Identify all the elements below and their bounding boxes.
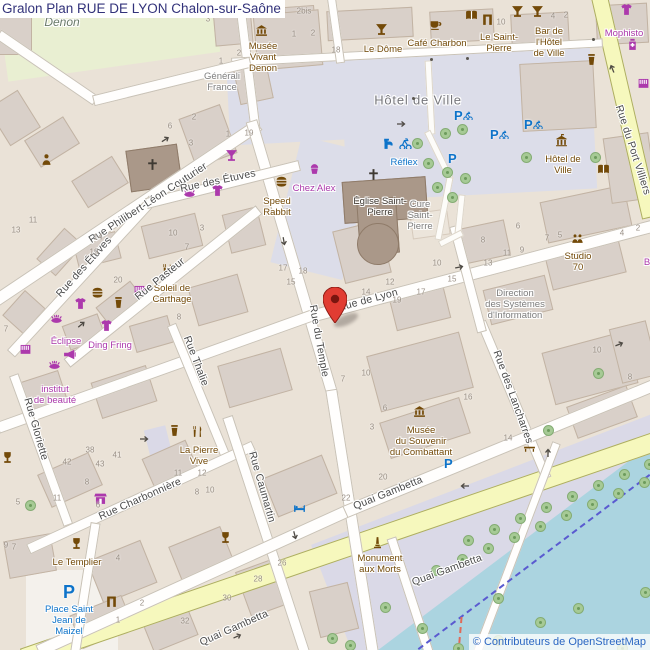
poi-label: Directiondes Systèmesd'Information bbox=[485, 289, 545, 322]
piano-icon bbox=[637, 77, 650, 95]
page-title: Gralon Plan RUE DE LYON Chalon-sur-Saône bbox=[0, 0, 285, 18]
trumpet-icon bbox=[63, 348, 76, 366]
house-number: 19 bbox=[245, 129, 254, 138]
house-number: 19 bbox=[393, 296, 402, 305]
house-number: 11 bbox=[29, 216, 37, 225]
parking-icon: P bbox=[444, 456, 453, 471]
house-number: 6 bbox=[168, 122, 172, 131]
bollard-dot bbox=[430, 58, 433, 61]
building bbox=[217, 348, 293, 408]
poi-label: Studio70 bbox=[565, 252, 592, 274]
poi-label: Café Charbon bbox=[407, 39, 466, 50]
poi-label: Le Dôme bbox=[364, 45, 403, 56]
attribution-link[interactable]: © Contributeurs de OpenStreetMap bbox=[469, 634, 650, 650]
monument-icon bbox=[371, 536, 384, 554]
house-number: 12 bbox=[386, 278, 395, 287]
poi-label: Chez Alex bbox=[293, 184, 336, 195]
house-number: 9 bbox=[4, 541, 8, 550]
house-number: 8 bbox=[85, 478, 89, 487]
house-number: 7 bbox=[341, 375, 345, 384]
tree-icon bbox=[457, 124, 468, 135]
map-canvas[interactable]: Gralon Plan RUE DE LYON Chalon-sur-Saône… bbox=[0, 0, 650, 650]
house-number: 2 bbox=[311, 29, 315, 38]
parking-icon: P bbox=[454, 108, 473, 123]
tree-icon bbox=[460, 173, 471, 184]
house-number: 5 bbox=[558, 231, 562, 240]
poi-label: GénéraliFrance bbox=[204, 72, 240, 94]
house-number: 20 bbox=[379, 473, 388, 482]
tree-icon bbox=[587, 499, 598, 510]
cutlery-icon bbox=[191, 425, 204, 443]
poi-label: Muséedu Souvenirdu Combattant bbox=[390, 426, 452, 459]
tree-icon bbox=[535, 521, 546, 532]
house-number: 22 bbox=[342, 494, 351, 503]
poi-label: Hôtel deVille bbox=[545, 155, 580, 177]
street-label: Rue Charbonnière bbox=[97, 475, 183, 522]
poi-label: MuséeVivantDenon bbox=[249, 42, 278, 75]
house-number: 5 bbox=[16, 498, 20, 507]
building bbox=[187, 274, 248, 327]
cupT-icon bbox=[585, 53, 598, 71]
piano-icon bbox=[19, 343, 32, 361]
street-label: Quai Gambetta bbox=[198, 608, 270, 649]
house-number: 7 bbox=[185, 243, 189, 252]
poi-label: B bbox=[644, 258, 650, 269]
poi-label: Bar del'Hôtelde Ville bbox=[534, 27, 565, 60]
house-number: 41 bbox=[113, 451, 122, 460]
house-number: 18 bbox=[299, 267, 308, 276]
house-number: 43 bbox=[96, 460, 105, 469]
cupT-icon bbox=[168, 424, 181, 442]
tree-icon bbox=[593, 480, 604, 491]
person-icon bbox=[40, 153, 53, 171]
house-number: 30 bbox=[223, 594, 232, 603]
civic-icon bbox=[555, 134, 568, 152]
house-number: 26 bbox=[278, 559, 287, 568]
tree-icon bbox=[541, 502, 552, 513]
tree-icon bbox=[380, 602, 391, 613]
burger-icon bbox=[91, 286, 104, 304]
house-number: 15 bbox=[287, 278, 296, 287]
house-number: 14 bbox=[504, 434, 513, 443]
house-number: 10 bbox=[169, 229, 178, 238]
tree-icon bbox=[412, 138, 423, 149]
cupT-icon bbox=[112, 296, 125, 314]
house-number: 11 bbox=[503, 249, 511, 258]
tree-icon bbox=[493, 593, 504, 604]
house-number: 10 bbox=[497, 18, 506, 27]
house-number: 2 bbox=[140, 599, 144, 608]
oneway-arrow-icon bbox=[544, 447, 552, 457]
house-number: 3 bbox=[200, 224, 204, 233]
house-number: 10 bbox=[593, 346, 602, 355]
tree-icon bbox=[489, 524, 500, 535]
house-number: 32 bbox=[181, 617, 190, 626]
tree-icon bbox=[463, 535, 474, 546]
house-number: 4 bbox=[551, 12, 555, 21]
tree-icon bbox=[619, 469, 630, 480]
house-number: 19 bbox=[90, 248, 99, 257]
parking-icon: P bbox=[490, 127, 509, 142]
poi-label: Église Saint-Pierre bbox=[353, 197, 406, 219]
burger-icon bbox=[275, 175, 288, 193]
house-number: 13 bbox=[484, 259, 493, 268]
bollard-dot bbox=[412, 97, 415, 100]
cross-icon bbox=[367, 168, 380, 186]
house-number: 10 bbox=[206, 486, 215, 495]
tree-icon bbox=[447, 192, 458, 203]
house-number: 2 bbox=[237, 49, 241, 58]
house-number: 7 bbox=[4, 325, 8, 334]
house-number: 38 bbox=[86, 446, 95, 455]
house-number: 14 bbox=[362, 288, 371, 297]
house-number: 1 bbox=[292, 30, 296, 39]
oneway-arrow-icon bbox=[140, 435, 150, 443]
parking-icon: P bbox=[63, 582, 75, 603]
goblet-icon bbox=[219, 531, 232, 549]
cocktail-icon bbox=[531, 5, 544, 23]
house-number: 28 bbox=[254, 575, 263, 584]
tree-icon bbox=[644, 459, 650, 470]
parking-icon: P bbox=[524, 117, 543, 132]
map-marker-pin bbox=[323, 287, 347, 323]
poi-label: CureSaint-Pierre bbox=[407, 200, 432, 233]
tree-icon bbox=[417, 623, 428, 634]
house-number: 8 bbox=[177, 313, 181, 322]
tree-icon bbox=[432, 182, 443, 193]
museum-icon bbox=[413, 405, 426, 423]
tshirt-icon bbox=[74, 297, 87, 315]
house-number: 6 bbox=[516, 222, 520, 231]
book-icon bbox=[465, 9, 478, 27]
house-number: 42 bbox=[63, 458, 72, 467]
house-number: 6 bbox=[96, 501, 100, 510]
house-number: 11 bbox=[174, 469, 182, 478]
house-number: 14 bbox=[94, 233, 103, 242]
oneway-arrow-icon bbox=[279, 236, 289, 247]
house-number: 9 bbox=[520, 246, 524, 255]
house-number: 1 bbox=[226, 130, 230, 139]
house-number: 2bis bbox=[297, 7, 312, 16]
house-number: 1 bbox=[116, 616, 120, 625]
tshirt-icon bbox=[100, 319, 113, 337]
goblet-icon bbox=[1, 451, 14, 469]
poi-label: Ding Fring bbox=[88, 341, 132, 352]
tree-icon bbox=[440, 128, 451, 139]
pharmacy-icon bbox=[626, 38, 639, 56]
building bbox=[71, 156, 129, 209]
tree-icon bbox=[593, 368, 604, 379]
tree-icon bbox=[590, 152, 601, 163]
oneway-arrow-icon bbox=[160, 133, 173, 145]
bollard-dot bbox=[592, 38, 595, 41]
house-number: 10 bbox=[362, 369, 371, 378]
tree-icon bbox=[567, 491, 578, 502]
tree-icon bbox=[521, 152, 532, 163]
tree-icon bbox=[345, 640, 356, 650]
house-number: 4 bbox=[620, 229, 624, 238]
house-number: 8 bbox=[628, 373, 632, 382]
tree-icon bbox=[640, 587, 650, 598]
house-number: 4 bbox=[116, 554, 120, 563]
eye-icon bbox=[50, 313, 63, 331]
poi-label: La PierreVive bbox=[180, 446, 219, 468]
house-number: 16 bbox=[464, 393, 473, 402]
bollard-dot bbox=[466, 57, 469, 60]
goblet-icon bbox=[70, 537, 83, 555]
tree-icon bbox=[573, 603, 584, 614]
cocktail-icon bbox=[375, 23, 388, 41]
cocktail-icon bbox=[511, 5, 524, 23]
house-number: 7 bbox=[545, 234, 549, 243]
poi-label: Le Templier bbox=[53, 558, 102, 569]
tree-icon bbox=[613, 488, 624, 499]
house-number: 3 bbox=[189, 139, 193, 148]
tree-icon bbox=[639, 477, 650, 488]
tshirt-icon bbox=[620, 3, 633, 21]
house-number: 11 bbox=[53, 494, 61, 503]
door-icon bbox=[481, 13, 494, 31]
bed-icon bbox=[293, 501, 306, 519]
house-number: 7 bbox=[12, 543, 16, 552]
poi-label: institutde beauté bbox=[34, 385, 76, 407]
bike-icon bbox=[399, 136, 412, 154]
house-number: 18 bbox=[332, 46, 341, 55]
tree-icon bbox=[509, 532, 520, 543]
book-icon bbox=[597, 163, 610, 181]
eye-icon bbox=[48, 359, 61, 377]
house-number: 6 bbox=[383, 404, 387, 413]
tree-icon bbox=[453, 643, 464, 650]
house-number: 17 bbox=[279, 264, 288, 273]
oneway-arrow-icon bbox=[397, 120, 407, 128]
street-label: Rue des Lancharres bbox=[491, 349, 536, 445]
house-number: 1 bbox=[219, 57, 223, 66]
tree-icon bbox=[561, 510, 572, 521]
door-icon bbox=[105, 595, 118, 613]
building bbox=[129, 315, 175, 353]
tree-icon bbox=[327, 633, 338, 644]
tree-icon bbox=[423, 158, 434, 169]
house-number: 2 bbox=[636, 224, 640, 233]
house-number: 15 bbox=[448, 275, 457, 284]
poi-label: Monumentaux Morts bbox=[358, 554, 403, 576]
place-label: Hôtel de Ville bbox=[374, 93, 462, 108]
tree-icon bbox=[25, 500, 36, 511]
tree-icon bbox=[535, 617, 546, 628]
poi-label: Éclipse bbox=[51, 337, 82, 348]
cupcake-icon bbox=[308, 162, 321, 180]
cross-icon bbox=[146, 158, 159, 176]
tree-icon bbox=[515, 513, 526, 524]
poi-label: SpeedRabbit bbox=[263, 197, 290, 219]
house-number: 8 bbox=[481, 236, 485, 245]
poi-label: Réflex bbox=[391, 158, 418, 169]
oneway-arrow-icon bbox=[459, 482, 469, 490]
cocktail-icon bbox=[225, 149, 238, 167]
tree-icon bbox=[483, 543, 494, 554]
house-number: 3 bbox=[370, 423, 374, 432]
house-number: 2 bbox=[192, 113, 196, 122]
house-number: 20 bbox=[114, 276, 123, 285]
fountain-icon bbox=[382, 137, 395, 155]
house-number: 17 bbox=[417, 288, 426, 297]
parking-icon: P bbox=[448, 151, 457, 166]
museum-icon bbox=[255, 24, 268, 42]
house-number: 13 bbox=[12, 226, 21, 235]
house-number: 8 bbox=[195, 488, 199, 497]
house-number: 10 bbox=[433, 259, 442, 268]
tree-icon bbox=[442, 167, 453, 178]
people-icon bbox=[571, 232, 584, 250]
house-number: 12 bbox=[198, 469, 207, 478]
cup-icon bbox=[429, 18, 442, 36]
tree-icon bbox=[543, 425, 554, 436]
house-number: 2 bbox=[564, 11, 568, 20]
poi-label: Le Saint-Pierre bbox=[480, 33, 518, 55]
poi-label: Place SaintJean deMaizel bbox=[45, 605, 93, 638]
